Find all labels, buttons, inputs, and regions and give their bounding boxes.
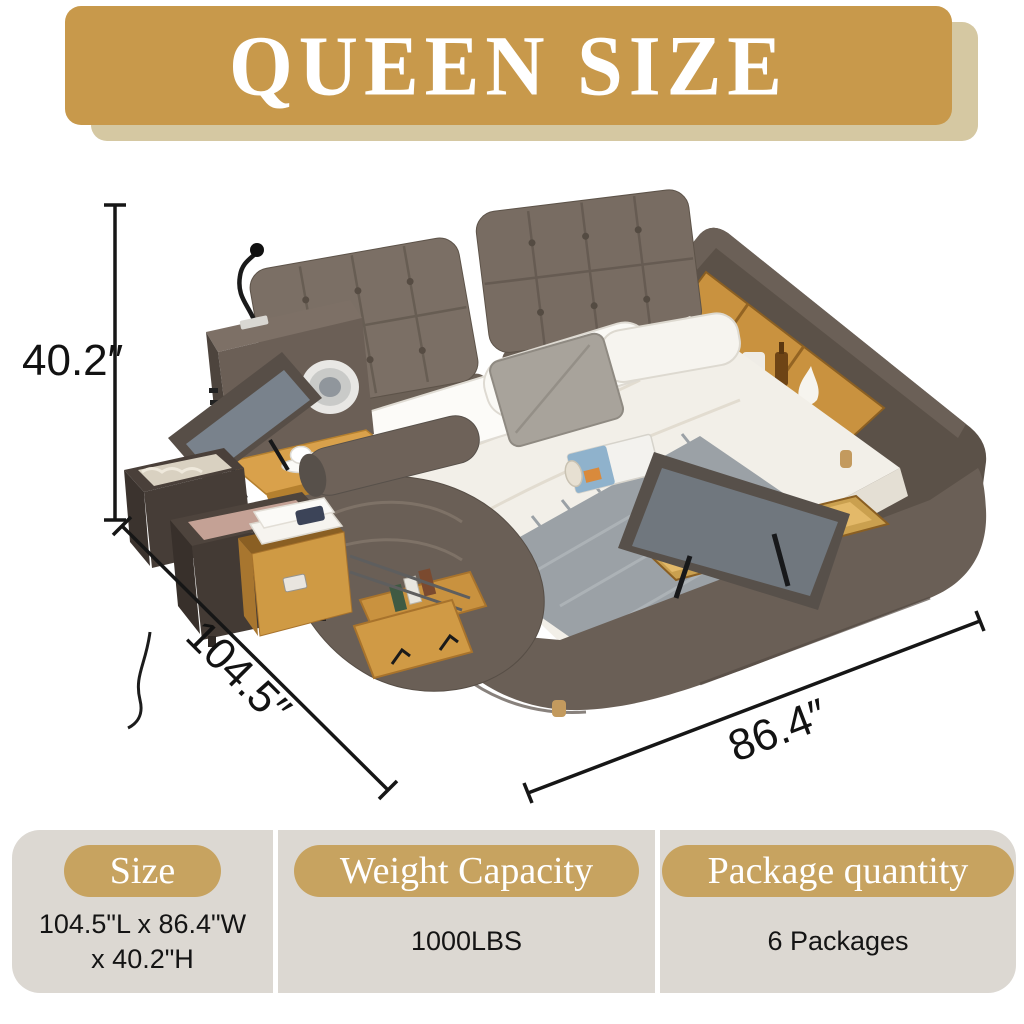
gold-foot-front bbox=[552, 700, 566, 717]
spec-value-weight-capacity: 1000LBS bbox=[411, 897, 522, 993]
spec-panel-weight-capacity: Weight Capacity 1000LBS bbox=[278, 830, 655, 993]
gold-foot-right bbox=[840, 450, 852, 468]
spec-value-package-quantity: 6 Packages bbox=[767, 897, 908, 993]
height-dimension-label: 40.2″ bbox=[22, 336, 123, 386]
spec-bar: Size 104.5"L x 86.4"W x 40.2"H Weight Ca… bbox=[12, 830, 1016, 993]
spec-header-package-quantity: Package quantity bbox=[662, 845, 1015, 897]
spec-value-size: 104.5"L x 86.4"W x 40.2"H bbox=[39, 897, 246, 993]
spec-panel-package-quantity: Package quantity 6 Packages bbox=[660, 830, 1016, 993]
power-cable bbox=[128, 632, 150, 728]
spec-panel-size: Size 104.5"L x 86.4"W x 40.2"H bbox=[12, 830, 273, 993]
product-infographic: QUEEN SIZE bbox=[0, 0, 1024, 1024]
spec-header-weight-capacity: Weight Capacity bbox=[294, 845, 639, 897]
spec-header-size: Size bbox=[64, 845, 221, 897]
